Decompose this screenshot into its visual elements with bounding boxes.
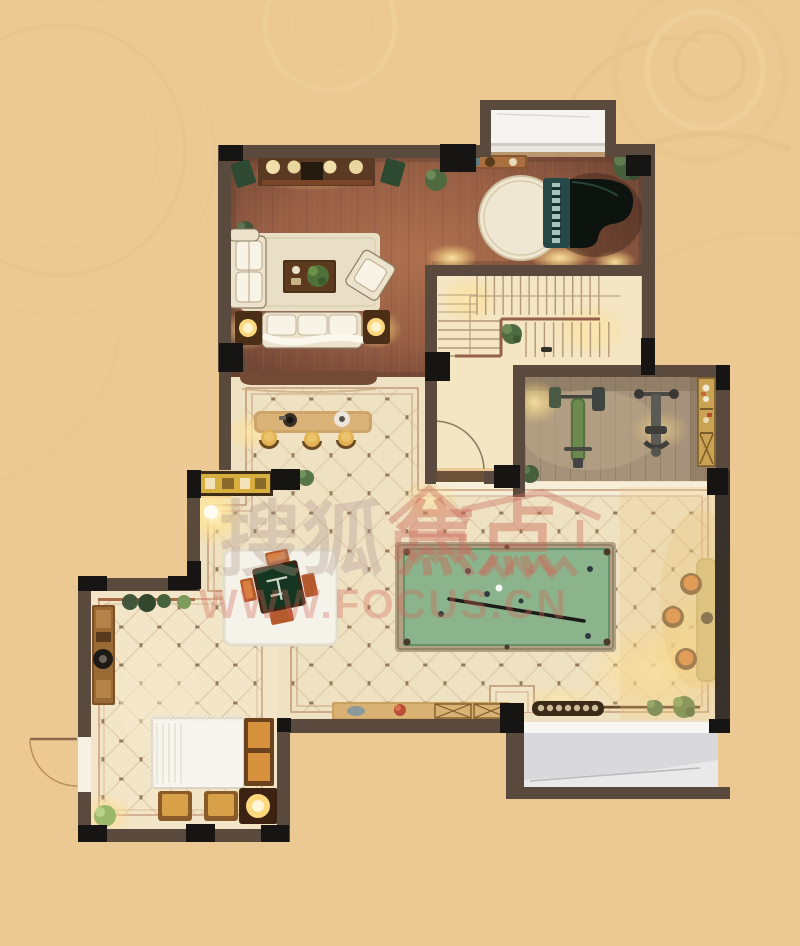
- svg-text:WWW.FOCUS.CN: WWW.FOCUS.CN: [199, 581, 568, 627]
- svg-text:搜狐: 搜狐: [219, 495, 383, 586]
- svg-text:焦点: 焦点: [395, 495, 559, 586]
